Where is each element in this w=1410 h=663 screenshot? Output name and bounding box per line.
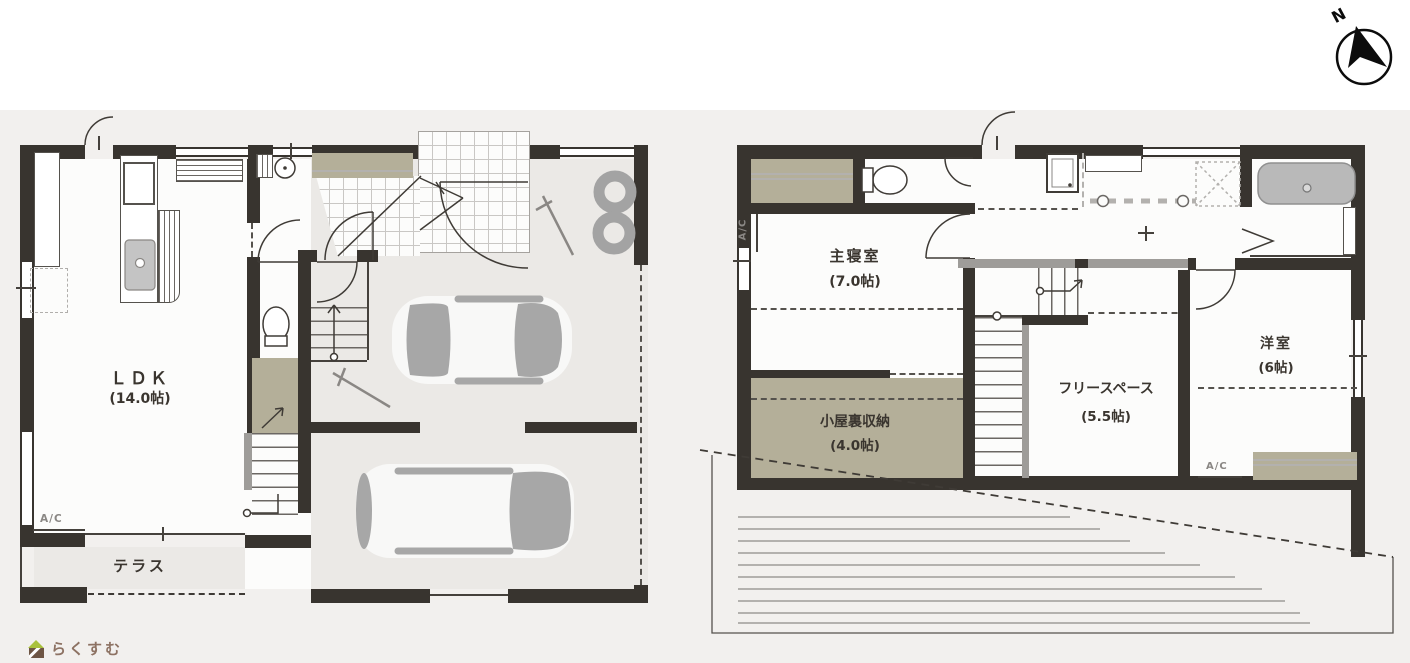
ac-label-2f-left: A/C bbox=[738, 215, 749, 245]
door-swing-marker bbox=[420, 178, 463, 230]
garage-marker bbox=[536, 196, 573, 255]
stair-post bbox=[1037, 288, 1044, 295]
washroom-door-arc bbox=[325, 212, 373, 260]
garage-marker bbox=[333, 368, 390, 407]
washbasin-icon bbox=[1047, 154, 1078, 192]
terrace-label: テラス bbox=[85, 555, 195, 576]
toilet-2f-icon bbox=[862, 166, 907, 194]
toilet-1f-icon bbox=[263, 307, 289, 346]
logo: らくすむ bbox=[28, 638, 123, 659]
western-room-size-label: (6帖) bbox=[1226, 356, 1326, 376]
attic-storage-label: 小屋裏収納 bbox=[790, 411, 920, 431]
door-arc bbox=[85, 117, 113, 145]
western-room-label: 洋室 bbox=[1226, 333, 1326, 353]
garage-tanks-icon bbox=[598, 176, 631, 249]
bedroom-door-arc bbox=[926, 214, 970, 258]
car-icon bbox=[392, 296, 572, 384]
bathtub-icon bbox=[1258, 163, 1355, 204]
ldk-label: ＬＤＫ bbox=[75, 364, 205, 389]
stair-guide-line bbox=[250, 494, 278, 513]
compass-icon bbox=[1337, 26, 1391, 84]
fixtures-overlay bbox=[0, 0, 1410, 663]
ac-underline bbox=[33, 529, 85, 531]
ldk-size-label: (14.0帖) bbox=[75, 388, 205, 408]
free-space-label: フリースペース bbox=[1040, 378, 1172, 398]
toilet-door-arc bbox=[258, 220, 300, 262]
logo-text: らくすむ bbox=[51, 638, 123, 659]
stair-post bbox=[244, 510, 251, 517]
laundry-pole-icon bbox=[1090, 196, 1196, 207]
western-room-door-arc bbox=[1196, 270, 1235, 309]
washer-1f-icon bbox=[275, 158, 295, 178]
car-icon bbox=[356, 464, 574, 558]
entrance-door-arc bbox=[440, 182, 528, 268]
stair-arrow-2f bbox=[1040, 280, 1082, 291]
door-arc bbox=[982, 112, 1015, 145]
attic-storage-size-label: (4.0帖) bbox=[790, 434, 920, 454]
floor-plan-canvas: ＬＤＫ (14.0帖) テラス A/C 主寝室 (7.0帖) 小屋裏収納 (4.… bbox=[0, 0, 1410, 663]
genkan-step-edge bbox=[338, 176, 421, 256]
stair-post bbox=[993, 312, 1001, 320]
roof-outline bbox=[700, 450, 1393, 633]
ac-label-1f: A/C bbox=[40, 513, 63, 525]
ac-label-2f-right: A/C bbox=[1206, 461, 1228, 472]
stair-arrow bbox=[262, 408, 283, 428]
stair-arrow-origin bbox=[331, 354, 338, 361]
stair-arrow-up bbox=[328, 305, 340, 357]
logo-house-icon bbox=[28, 640, 45, 658]
stairs-door-arc bbox=[317, 262, 357, 302]
master-bedroom-label: 主寝室 bbox=[795, 245, 915, 266]
toilet2f-door-arc bbox=[945, 158, 973, 186]
kitchen-sink-icon bbox=[125, 240, 155, 290]
washing-machine-space-icon bbox=[1196, 162, 1240, 206]
master-bedroom-size-label: (7.0帖) bbox=[795, 271, 915, 291]
bath-folding-door bbox=[1242, 229, 1273, 253]
free-space-size-label: (5.5帖) bbox=[1040, 405, 1172, 425]
